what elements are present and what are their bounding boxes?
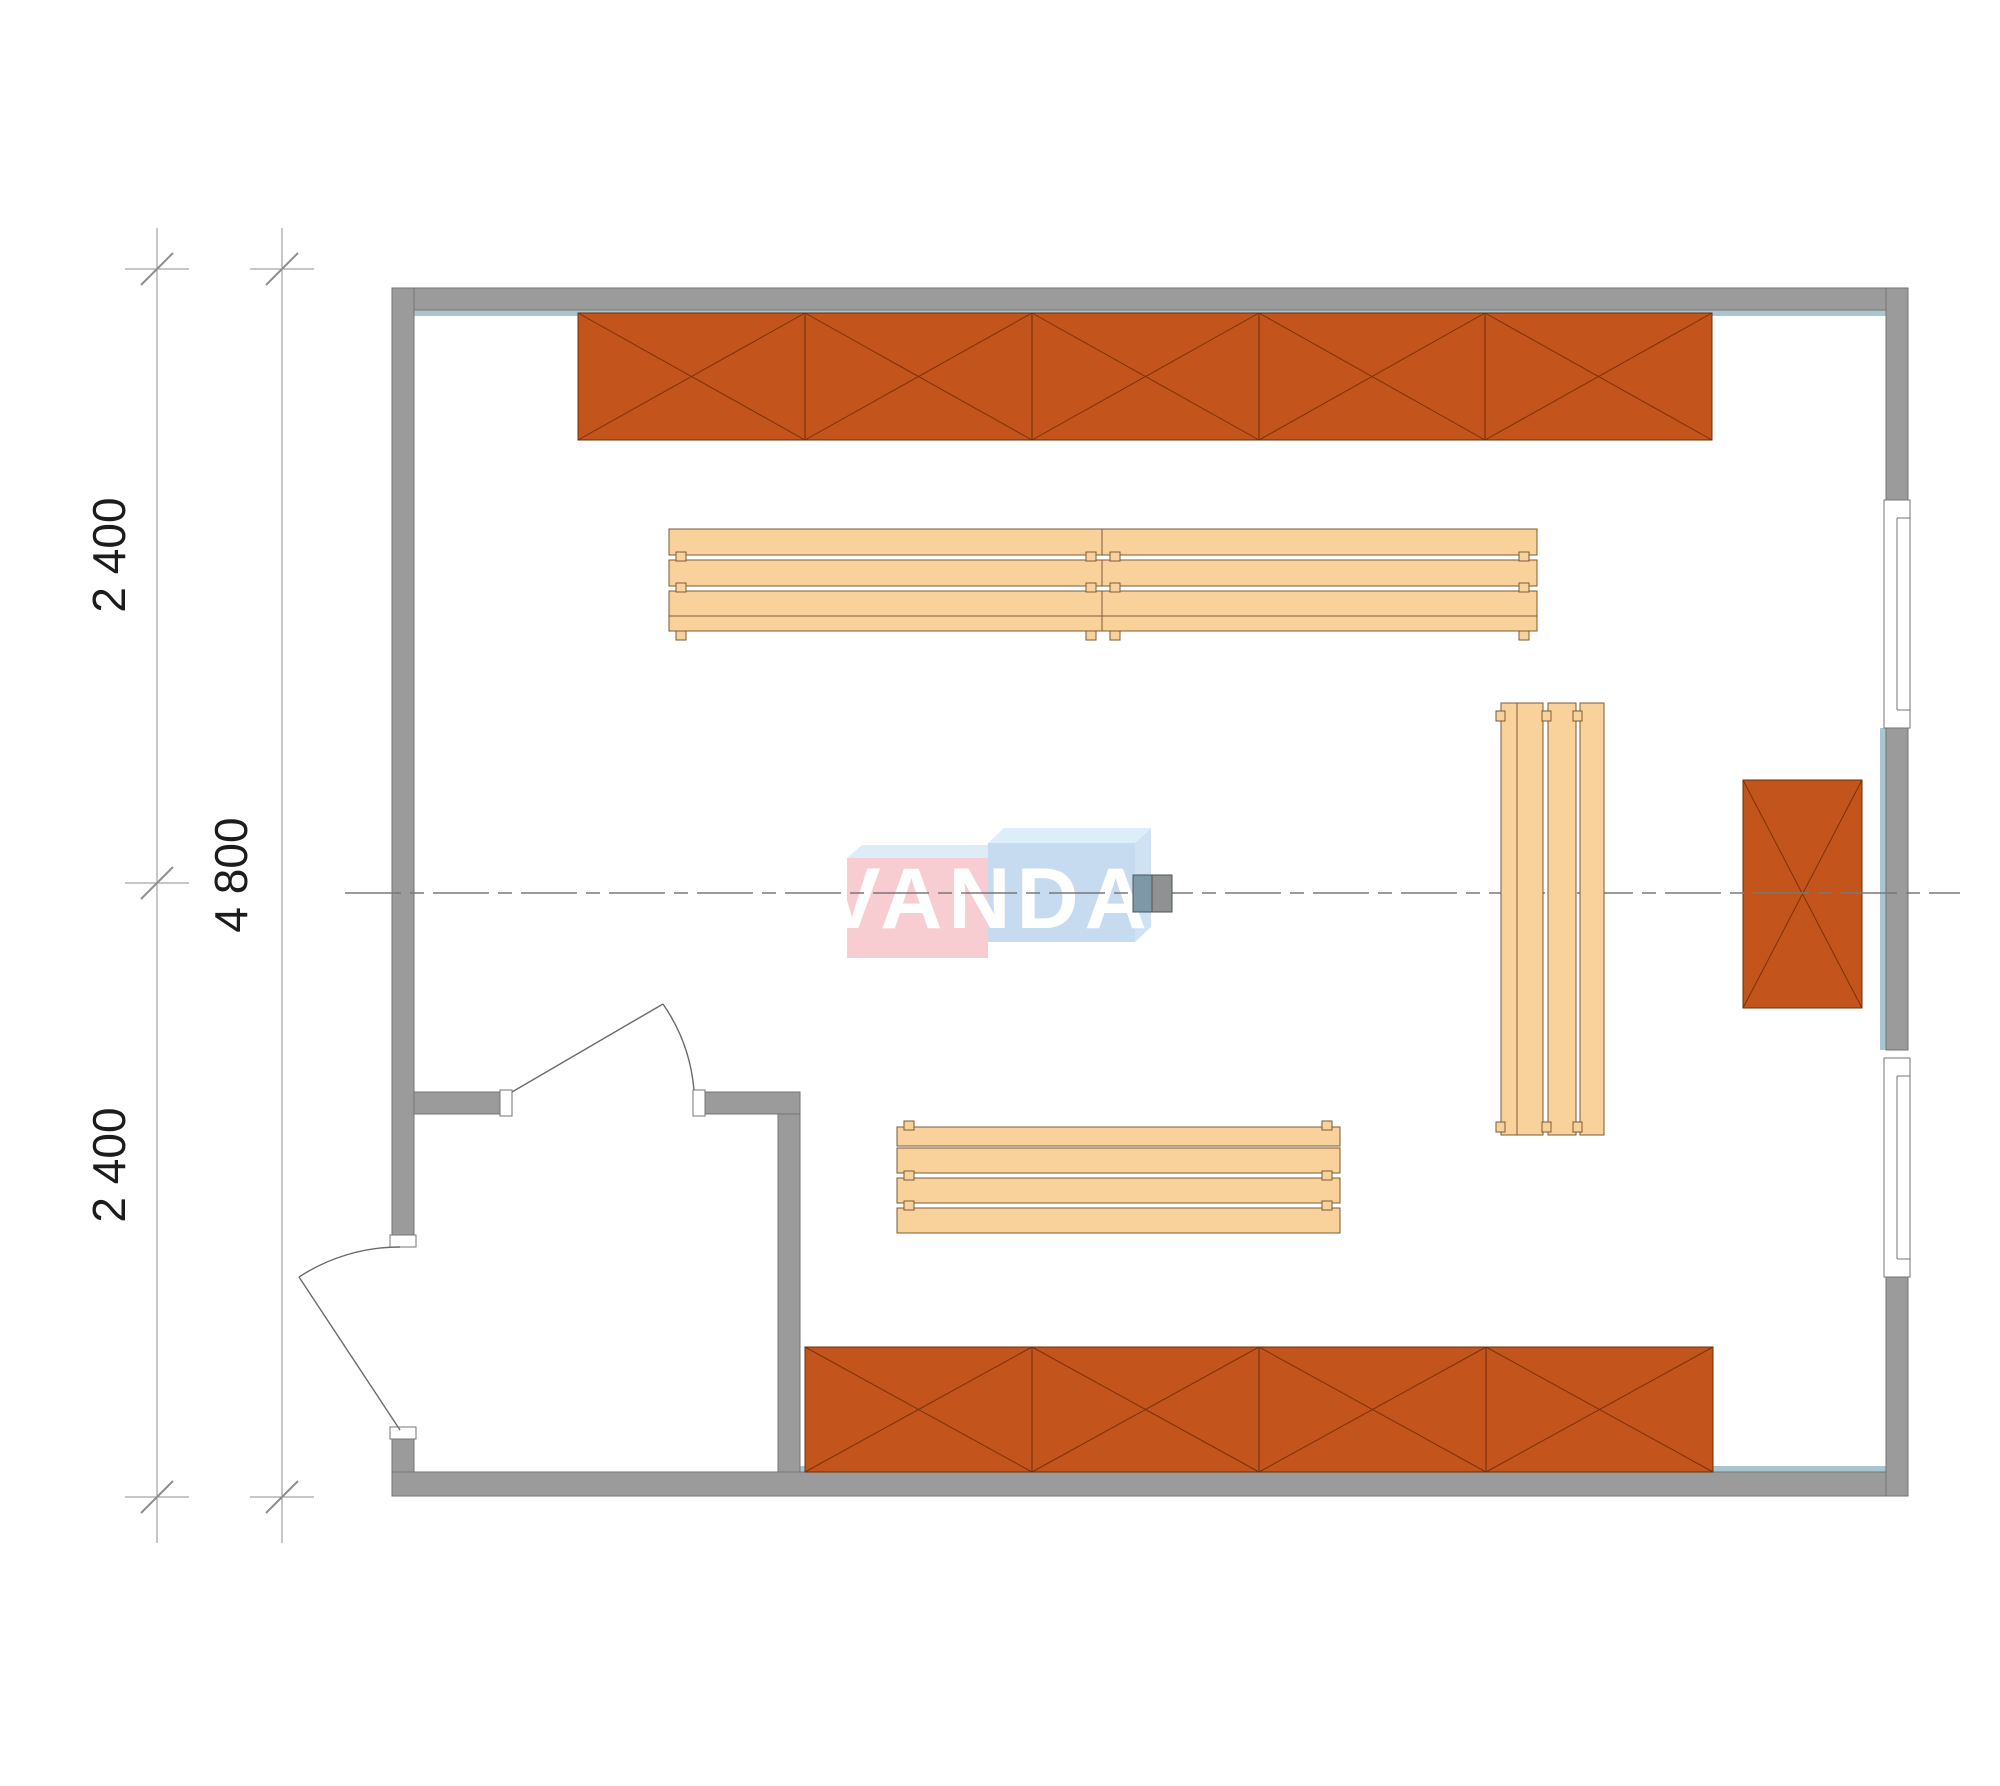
bench-tab [1110, 552, 1120, 561]
bench-tab [1519, 583, 1529, 592]
door-jambs [390, 1090, 705, 1439]
bench-foot [676, 631, 686, 640]
bench-tab [1322, 1201, 1332, 1210]
bench-front-rail [897, 1127, 1340, 1146]
bench-slat [1580, 703, 1604, 1135]
dimension-lines: 2 400 4 800 2 400 [83, 228, 314, 1543]
bench-slat [1102, 560, 1537, 586]
floor-plan-canvas: VANDA [0, 0, 2000, 1786]
bench-tab [1322, 1121, 1332, 1130]
bench-upper-right [1102, 529, 1537, 640]
bench-tab [1496, 711, 1505, 721]
partition-wall-vertical [778, 1114, 800, 1472]
interior-door-leaf [512, 1004, 663, 1092]
exterior-door-jamb-top [390, 1235, 416, 1247]
cabinet-row-top [578, 313, 1712, 440]
bench-tab [1110, 583, 1120, 592]
interior-door-jamb-right [693, 1090, 705, 1116]
stove-flue-symbol [1133, 875, 1172, 912]
bench-slat [669, 560, 1102, 586]
doors [299, 1004, 694, 1430]
bench-slat [1102, 529, 1537, 555]
partition-wall-left [414, 1092, 500, 1114]
bench-foot [1086, 631, 1096, 640]
logo-blue-box-top-face [988, 828, 1151, 843]
bench-tab [1086, 583, 1096, 592]
flue-right-half [1152, 875, 1172, 912]
right-wall-middle [1886, 728, 1908, 1050]
right-wall-upper [1886, 288, 1908, 500]
bottom-wall [392, 1472, 1908, 1496]
bench-foot [1519, 631, 1529, 640]
dimension-label-overall: 4 800 [205, 817, 257, 932]
bench-front-rail [1501, 703, 1517, 1135]
exterior-door-swing-arc [299, 1247, 400, 1277]
bench-slat [897, 1178, 1340, 1203]
bench-tab [1496, 1122, 1505, 1132]
bench-tab [1542, 711, 1551, 721]
bench-slat [897, 1208, 1340, 1233]
dimension-label-bottom-segment: 2 400 [83, 1107, 135, 1222]
bench-front-rail [1102, 616, 1537, 631]
top-wall [392, 288, 1908, 310]
bench-tab [904, 1171, 914, 1180]
bench-upper-left [669, 529, 1102, 640]
exterior-door-jamb-bottom [390, 1427, 416, 1439]
flue-left-half [1133, 875, 1152, 912]
bench-tab [1573, 711, 1582, 721]
interior-door-swing-arc [663, 1004, 694, 1090]
right-wall-lower [1886, 1277, 1908, 1496]
bench-slat [669, 529, 1102, 555]
bench-tab [676, 583, 686, 592]
bench-tab [1519, 552, 1529, 561]
bench-slat [1102, 591, 1537, 616]
lining-right-wall [1880, 728, 1886, 1050]
bench-tab [904, 1201, 914, 1210]
bench-slat [897, 1148, 1340, 1173]
dimension-label-top-segment: 2 400 [83, 497, 135, 612]
floor-plan-page: VANDA [0, 0, 2000, 1786]
partition-wall-right [705, 1092, 800, 1114]
interior-door-jamb-left [500, 1090, 512, 1116]
bench-front-rail [669, 616, 1102, 631]
bench-tab [1542, 1122, 1551, 1132]
bench-tab [1322, 1171, 1332, 1180]
exterior-door-leaf [299, 1277, 400, 1430]
bench-tab [676, 552, 686, 561]
bench-slat [1548, 703, 1576, 1135]
bench-tab [904, 1121, 914, 1130]
left-wall [392, 288, 414, 1247]
cabinet-row-bottom [805, 1347, 1713, 1472]
logo-text: VANDA [823, 851, 1152, 947]
bench-foot [1110, 631, 1120, 640]
bench-vertical [1496, 703, 1604, 1135]
bench-slat [1517, 703, 1543, 1135]
bench-tab [1086, 552, 1096, 561]
bench-lower [897, 1121, 1340, 1233]
bench-tab [1573, 1122, 1582, 1132]
cabinet-right-wall [1743, 780, 1862, 1008]
bench-slat [669, 591, 1102, 616]
